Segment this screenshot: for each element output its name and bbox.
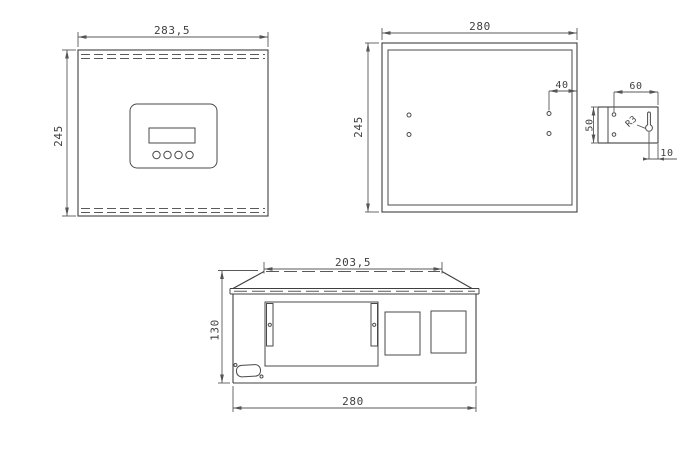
- bottom-view: 203,5 130: [209, 256, 480, 412]
- keyhole-offset-arrow-left: [643, 157, 649, 160]
- back-view-outline: [382, 43, 577, 212]
- front-view-outline: [78, 50, 268, 216]
- slope-edge-right: [442, 272, 472, 289]
- bracket-width-dimension-label: 60: [629, 81, 642, 92]
- technical-drawing-canvas: 283,5 245 280 245 40 R3: [0, 0, 681, 455]
- bracket-hole-bottom: [612, 133, 616, 137]
- dsub-screw-right: [260, 375, 263, 378]
- keyhole-radius-label: R3: [624, 114, 640, 129]
- cover-clamp-right: [371, 304, 378, 347]
- panel-button-1: [153, 151, 160, 158]
- keyhole-slot: [646, 112, 653, 131]
- mounting-bracket-detail: R3 60 50 10: [585, 81, 678, 161]
- panel-button-3: [175, 151, 182, 158]
- clamp-screw-left: [268, 323, 271, 326]
- panel-button-2: [164, 151, 171, 158]
- cover-clamp-left: [267, 304, 274, 347]
- mounting-hole-left-bottom: [407, 133, 411, 137]
- back-width-dimension-label: 280: [469, 20, 491, 33]
- opening-2: [431, 311, 466, 353]
- bracket-height-dimension-label: 50: [585, 118, 596, 131]
- front-width-dimension-label: 283,5: [154, 24, 190, 37]
- bottom-width-dimension-label: 280: [342, 395, 364, 408]
- mounting-hole-right-bottom: [547, 132, 551, 136]
- dsub-screw-left: [234, 363, 237, 366]
- hole-offset-dimension-label: 40: [555, 80, 568, 91]
- back-view-inner-panel: [388, 50, 572, 205]
- terminal-cover: [265, 302, 378, 366]
- opening-1: [385, 312, 420, 355]
- keyhole-radius-leader: [637, 125, 645, 128]
- display-panel: [130, 104, 217, 168]
- mounting-hole-left-top: [407, 113, 411, 117]
- bottom-topwidth-dimension-label: 203,5: [335, 256, 371, 269]
- slope-edge-left: [233, 272, 264, 289]
- back-height-dimension-label: 245: [352, 116, 365, 138]
- front-height-dimension-label: 245: [52, 125, 65, 147]
- back-view: 280 245 40: [352, 20, 577, 212]
- bottom-height-dimension-label: 130: [209, 319, 222, 341]
- keyhole-offset-dimension-label: 10: [660, 148, 673, 159]
- clamp-screw-right: [373, 323, 376, 326]
- lcd-screen: [149, 128, 195, 143]
- drawing-svg: 283,5 245 280 245 40 R3: [0, 0, 681, 455]
- mounting-hole-right-top: [547, 112, 551, 116]
- panel-button-4: [186, 151, 193, 158]
- bracket-hole-top: [612, 113, 616, 117]
- front-view: 283,5 245: [52, 24, 268, 216]
- dsub-connector-body: [236, 364, 261, 377]
- dsub-connector: [234, 362, 263, 379]
